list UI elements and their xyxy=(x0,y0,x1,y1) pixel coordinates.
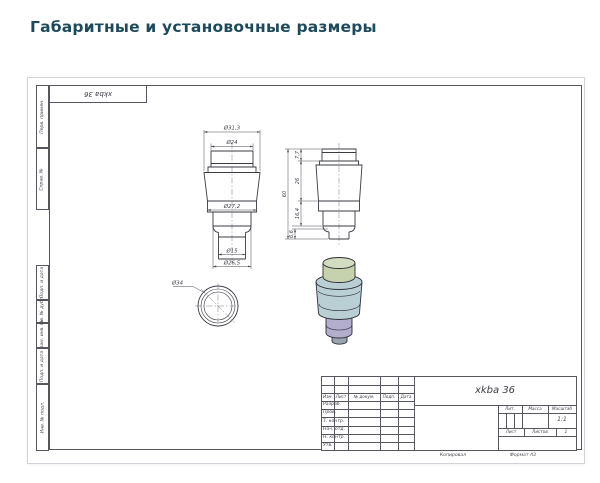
drawing-sheet: Перв. примен. Справ. № Подп. и дата Инв.… xyxy=(27,77,585,464)
tb-row-prov: Пров. xyxy=(323,411,348,416)
tb-col-izm: Изм. xyxy=(322,395,334,399)
dim-front-body: Ø27,2 xyxy=(223,203,241,210)
dim-bottom-outer: Ø34 xyxy=(171,280,184,287)
tb-row-nkontr: Н. контр. xyxy=(323,436,348,441)
margin-box-podp-data-2: Подп. и дата xyxy=(36,348,49,384)
corner-stamp-label: xkba 36 xyxy=(84,90,112,98)
page-title: Габаритные и установочные размеры xyxy=(30,18,377,36)
dim-front-outer: Ø31,3 xyxy=(223,125,241,132)
tb-col-list: Лист xyxy=(334,395,348,399)
bottom-view-drawing: Ø34 xyxy=(171,280,241,330)
dim-side-lower: 16,4 xyxy=(295,208,301,219)
tb-sheet-label: Лист xyxy=(498,430,524,434)
tb-scale-value: 1:1 xyxy=(548,417,576,423)
margin-box-inv-podl: Инв. № подл. xyxy=(36,384,49,451)
tb-sheets-label: Листов xyxy=(524,430,556,434)
title-block: Изм. Лист № докум. Подп. Дата Разраб. Пр… xyxy=(321,376,577,451)
margin-box-sprav-no: Справ. № xyxy=(36,148,49,210)
dim-side-stem: 6,6 xyxy=(289,230,295,238)
dim-side-cap: 7,7 xyxy=(295,150,301,159)
dim-front-stem: Ø15 xyxy=(225,248,238,255)
tb-mass-label: Масса xyxy=(522,407,548,411)
dim-front-lower: Ø26,5 xyxy=(223,260,241,267)
tb-doc-name: xkba 36 xyxy=(414,386,576,396)
tb-col-dokum: № докум. xyxy=(348,395,380,399)
margin-box-podp-data-1: Подп. и дата xyxy=(36,265,49,300)
front-view-drawing: Ø31,3 Ø24 Ø27,2 Ø15 Ø26,5 Ø34 xyxy=(156,121,286,336)
tb-row-utv: Утв. xyxy=(323,444,348,449)
tb-col-data: Дата xyxy=(398,395,414,399)
tb-col-podp: Подп. xyxy=(380,395,398,399)
side-view-drawing: 60 7,7 26 16,4 6,6 xyxy=(281,141,371,251)
dim-side-body: 26 xyxy=(295,178,301,184)
tb-row-tkontr: Т. контр. xyxy=(323,420,348,425)
margin-box-perv-primen: Перв. примен. xyxy=(36,85,49,148)
tb-row-razrab: Разраб. xyxy=(323,403,348,408)
margin-box-vzam-inv: Взам. инв. № xyxy=(36,323,49,348)
format-label: Формат А3 xyxy=(493,453,553,458)
tb-sheets-value: 1 xyxy=(556,430,576,434)
dim-front-cap: Ø24 xyxy=(225,139,238,146)
tb-lit-label: Лит. xyxy=(498,407,522,411)
page: Габаритные и установочные размеры Перв. … xyxy=(0,0,600,483)
model-3d-view xyxy=(301,249,379,347)
copied-label: Копировал xyxy=(423,453,483,458)
tb-scale-label: Масштаб xyxy=(548,407,576,411)
tb-row-nachotd: Нач. отд. xyxy=(323,428,348,433)
corner-stamp: xkba 36 xyxy=(49,85,147,103)
dim-side-total: 60 xyxy=(282,191,288,197)
